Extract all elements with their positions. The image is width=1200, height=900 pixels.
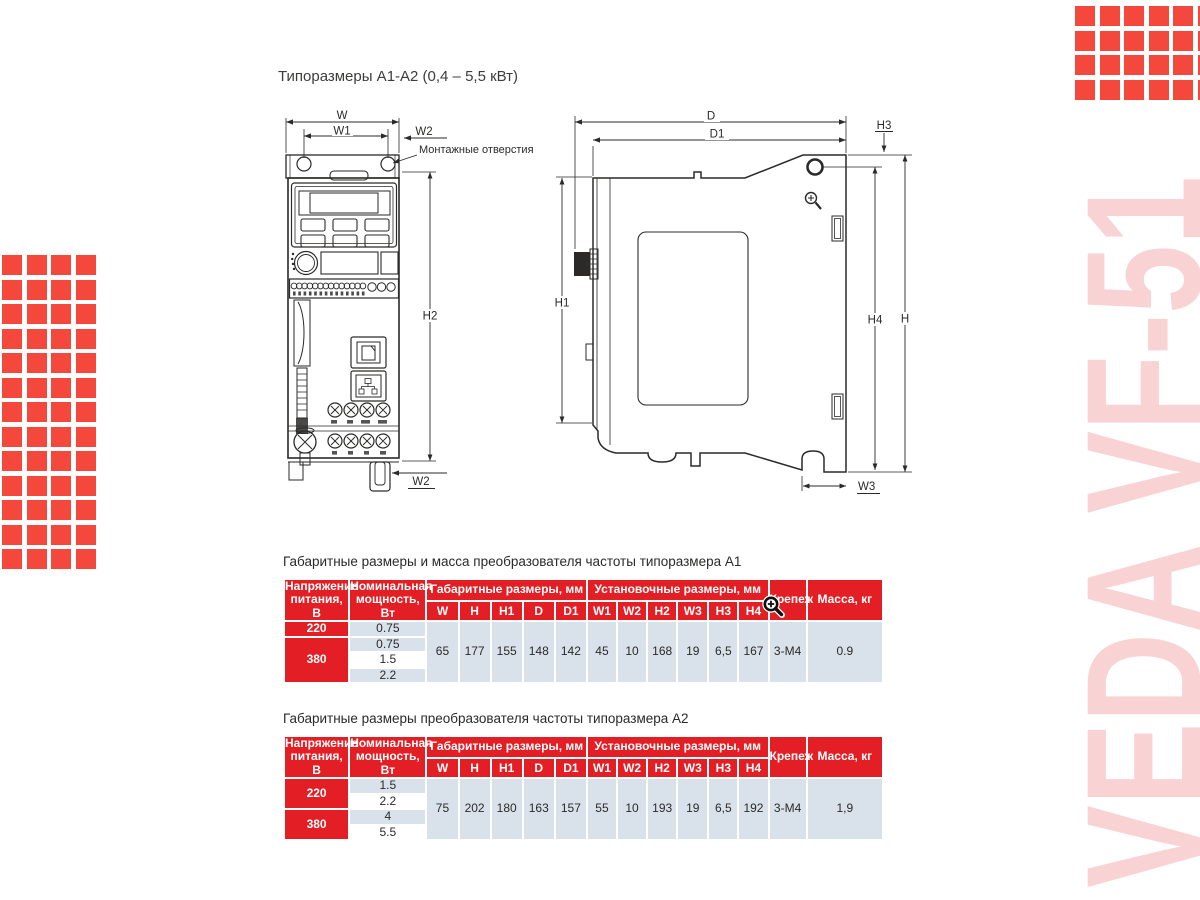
svg-text:W2: W2 [415, 126, 432, 138]
dim-h4: H4 [863, 167, 887, 470]
deco-square [2, 476, 22, 496]
th-w1: W1 [587, 758, 617, 778]
td-w: 75 [426, 778, 458, 840]
option-port [351, 337, 386, 368]
th-group-overall: Габаритные размеры, мм [426, 579, 586, 601]
mounting-hole-right [381, 157, 395, 171]
deco-square [1149, 31, 1169, 51]
device-body-front [288, 178, 399, 458]
deco-square [76, 427, 96, 447]
th-voltage: Напряжение питания, В [284, 579, 349, 621]
td-mass: 0.9 [807, 621, 883, 683]
datasheet-page: VEDA VF-51 Типоразмеры A1-A2 (0,4 – 5,5 … [0, 0, 1200, 900]
svg-text:H: H [901, 314, 909, 326]
td-power: 5.5 [349, 825, 426, 840]
deco-square [27, 549, 47, 569]
td-power: 0.75 [349, 637, 426, 652]
deco-square [1100, 55, 1120, 75]
th-w3: W3 [677, 601, 708, 621]
deco-square [76, 280, 96, 300]
keypad-button [301, 235, 325, 247]
svg-text:H4: H4 [868, 315, 883, 327]
th-h1: H1 [491, 758, 523, 778]
keypad-button [301, 219, 325, 231]
td-fastener: 3-М4 [769, 778, 807, 840]
th-w: W [426, 758, 458, 778]
keypad-button [365, 235, 389, 247]
td-h1: 180 [491, 778, 523, 840]
deco-square [76, 402, 96, 422]
deco-square [2, 255, 22, 275]
dim-h: H [897, 155, 913, 472]
deco-square [51, 500, 71, 520]
dimension-drawings: W W1 W2 Монтажные отверстия [250, 95, 940, 500]
dim-w2-bottom: W2 [392, 473, 447, 489]
th-h: H [459, 758, 491, 778]
dim-h1: H1 [550, 177, 592, 423]
td-w1: 55 [587, 778, 617, 840]
th-d1: D1 [555, 758, 587, 778]
td-voltage-380: 380 [284, 637, 349, 683]
deco-square [27, 427, 47, 447]
deco-square [51, 451, 71, 471]
deco-square [1075, 31, 1095, 51]
deco-square [51, 255, 71, 275]
th-w3: W3 [677, 758, 708, 778]
svg-text:W3: W3 [858, 481, 875, 493]
th-h3: H3 [708, 758, 738, 778]
svg-text:W: W [337, 110, 348, 122]
deco-square [51, 304, 71, 324]
svg-text:D: D [707, 111, 715, 123]
deco-square [27, 451, 47, 471]
keypad-display [299, 191, 390, 215]
deco-square [51, 353, 71, 373]
flange-mounting-hole [808, 160, 823, 175]
td-power: 2.2 [349, 668, 426, 683]
ground-screw [294, 428, 316, 465]
table-a1: Напряжение питания, В Номинальная мощнос… [283, 578, 884, 684]
deco-square [51, 378, 71, 398]
mounting-plate [286, 155, 399, 180]
mounting-hole-left [297, 157, 311, 171]
td-d: 148 [523, 621, 555, 683]
power-terminals-lower [328, 434, 390, 455]
deco-square [1149, 80, 1169, 100]
dim-w3: W3 [802, 476, 880, 494]
side-connector [574, 249, 598, 360]
deco-square [27, 378, 47, 398]
th-group-mounting: Установочные размеры, мм [587, 736, 769, 758]
td-h: 177 [459, 621, 491, 683]
table-a2-caption: Габаритные размеры преобразователя часто… [283, 711, 689, 726]
deco-square [2, 402, 22, 422]
keypad-button [365, 219, 389, 231]
deco-square [51, 280, 71, 300]
th-h4: H4 [738, 758, 768, 778]
td-d: 163 [523, 778, 555, 840]
td-h2: 193 [647, 778, 677, 840]
deco-square [2, 549, 22, 569]
td-w3: 19 [677, 621, 708, 683]
deco-square [27, 329, 47, 349]
deco-square [1173, 31, 1193, 51]
svg-text:W2: W2 [412, 476, 429, 488]
deco-square [1173, 55, 1193, 75]
svg-text:Монтажные отверстия: Монтажные отверстия [419, 144, 534, 156]
deco-square [51, 549, 71, 569]
magnifier-cursor-icon [761, 594, 787, 620]
deco-square [76, 304, 96, 324]
mounting-holes-callout: Монтажные отверстия [393, 144, 534, 163]
th-w1: W1 [587, 601, 617, 621]
knob-row [291, 252, 398, 275]
deco-square [2, 329, 22, 349]
td-power: 1.5 [349, 652, 426, 667]
td-h2: 168 [647, 621, 677, 683]
th-mass: Масса, кг [807, 736, 883, 778]
deco-square [1075, 6, 1095, 26]
deco-square [76, 353, 96, 373]
th-group-mounting: Установочные размеры, мм [587, 579, 769, 601]
td-h3: 6,5 [708, 778, 738, 840]
deco-square [2, 500, 22, 520]
th-w2: W2 [617, 758, 647, 778]
td-h3: 6,5 [708, 621, 738, 683]
th-d: D [523, 601, 555, 621]
deco-square [1173, 80, 1193, 100]
td-w2: 10 [617, 778, 647, 840]
td-voltage-380: 380 [284, 809, 349, 840]
deco-square [27, 304, 47, 324]
th-voltage: Напряжение питания, В [284, 736, 349, 778]
table-a1-caption: Габаритные размеры и масса преобразовате… [283, 554, 741, 569]
td-power: 2.2 [349, 794, 426, 809]
deco-square [1075, 80, 1095, 100]
bottom-hook [370, 462, 390, 491]
deco-square [2, 451, 22, 471]
keypad-button [333, 235, 357, 247]
front-view-drawing: W W1 W2 Монтажные отверстия [286, 110, 534, 491]
dim-h2: H2 [402, 172, 441, 461]
deco-square [2, 280, 22, 300]
svg-text:D1: D1 [710, 129, 725, 141]
th-d: D [523, 758, 555, 778]
page-title: Типоразмеры A1-A2 (0,4 – 5,5 кВт) [278, 68, 518, 85]
th-w: W [426, 601, 458, 621]
deco-square [27, 402, 47, 422]
td-w1: 45 [587, 621, 617, 683]
deco-square [1100, 31, 1120, 51]
deco-square [51, 525, 71, 545]
brand-vertical-text: VEDA VF-51 [1063, 176, 1200, 888]
deco-square [1100, 6, 1120, 26]
deco-square [27, 255, 47, 275]
td-w3: 19 [677, 778, 708, 840]
th-h1: H1 [491, 601, 523, 621]
th-mass: Масса, кг [807, 579, 883, 621]
th-h2: H2 [647, 601, 677, 621]
deco-square [1173, 6, 1193, 26]
svg-text:H1: H1 [555, 298, 570, 310]
th-power: Номинальная мощность, Вт [349, 736, 426, 778]
zoom-cursor-icon [806, 193, 822, 210]
td-w: 65 [426, 621, 458, 683]
deco-square [76, 500, 96, 520]
deco-square [27, 280, 47, 300]
td-h: 202 [459, 778, 491, 840]
th-fastener: Крепеж [769, 736, 807, 778]
deco-square [1124, 80, 1144, 100]
deco-square [1100, 80, 1120, 100]
dim-w1: W1 [304, 125, 388, 158]
dim-h3: H3 [875, 120, 893, 152]
deco-square [76, 549, 96, 569]
th-group-overall: Габаритные размеры, мм [426, 736, 586, 758]
deco-square [1149, 6, 1169, 26]
th-d1: D1 [555, 601, 587, 621]
dim-w2-top: W2 [404, 126, 447, 138]
deco-square [76, 378, 96, 398]
cable-channel [294, 300, 310, 434]
deco-square [2, 525, 22, 545]
th-h: H [459, 601, 491, 621]
td-h4: 192 [738, 778, 768, 840]
th-power: Номинальная мощность, Вт [349, 579, 426, 621]
td-voltage-220: 220 [284, 621, 349, 636]
power-terminals-upper [328, 403, 390, 424]
rj45-port [351, 371, 386, 401]
side-vents [832, 216, 843, 419]
deco-square [51, 427, 71, 447]
td-h4: 167 [738, 621, 768, 683]
deco-square [76, 329, 96, 349]
deco-square [76, 451, 96, 471]
deco-square [27, 500, 47, 520]
td-power: 0.75 [349, 621, 426, 636]
deco-square [2, 304, 22, 324]
side-view-drawing: D D1 H3 [550, 111, 913, 494]
svg-text:H2: H2 [423, 311, 438, 323]
deco-square [1124, 55, 1144, 75]
th-h2: H2 [647, 758, 677, 778]
svg-text:W1: W1 [333, 126, 350, 138]
td-w2: 10 [617, 621, 647, 683]
deco-square [2, 353, 22, 373]
td-fastener: 3-М4 [769, 621, 807, 683]
deco-square [1124, 31, 1144, 51]
deco-square [76, 525, 96, 545]
bottom-plate [288, 458, 399, 491]
deco-square [76, 255, 96, 275]
th-w2: W2 [617, 601, 647, 621]
deco-square [1124, 6, 1144, 26]
deco-square [1075, 55, 1095, 75]
deco-square [1149, 55, 1169, 75]
deco-square [2, 427, 22, 447]
table-a2: Напряжение питания, В Номинальная мощнос… [283, 735, 884, 841]
deco-square [27, 525, 47, 545]
keypad-button [333, 219, 357, 231]
deco-pixel-grid-left [2, 255, 96, 569]
deco-square [27, 476, 47, 496]
td-h1: 155 [491, 621, 523, 683]
deco-square [76, 476, 96, 496]
deco-square [51, 402, 71, 422]
control-terminal-strip [290, 279, 399, 298]
th-h3: H3 [708, 601, 738, 621]
keypad-panel [292, 183, 397, 247]
deco-square [51, 329, 71, 349]
td-d1: 142 [555, 621, 587, 683]
deco-square [2, 378, 22, 398]
deco-square [27, 353, 47, 373]
td-mass: 1,9 [807, 778, 883, 840]
td-power: 1.5 [349, 778, 426, 793]
deco-pixel-grid-top-right [1075, 6, 1200, 100]
td-d1: 157 [555, 778, 587, 840]
td-power: 4 [349, 809, 426, 824]
svg-text:H3: H3 [877, 120, 892, 132]
deco-square [51, 476, 71, 496]
td-voltage-220: 220 [284, 778, 349, 809]
nameplate-area [638, 232, 748, 405]
